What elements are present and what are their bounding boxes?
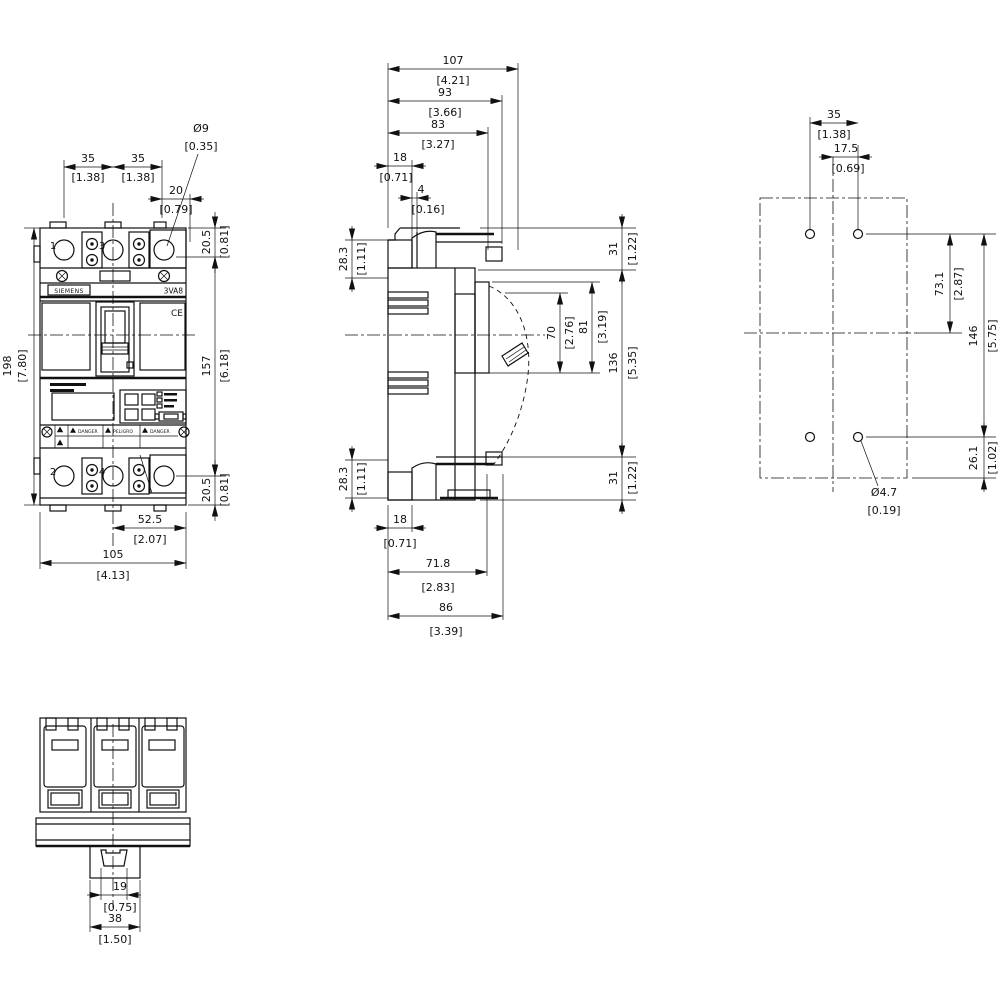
dim-side-term-top: 28.3 [1.11] <box>337 226 388 292</box>
dim-text: 35 <box>827 108 841 121</box>
terminal-hole-5 <box>154 240 174 260</box>
warning-strip: DANGER PELIGRO DANGER <box>42 425 189 448</box>
dim-text: 73.1 <box>933 272 946 297</box>
dim-side-term-bottom: 28.3 [1.11] <box>337 446 388 512</box>
terminal-number-1: 1 <box>50 241 56 252</box>
dim-text: 18 <box>393 513 407 526</box>
dim-front-total-height: 198 [7.80] <box>1 228 40 505</box>
drill-pattern-view: 35 [1.38] 17.5 [0.69] 73.1 [2.87] 146 [5… <box>744 108 999 517</box>
dim-text: 198 <box>1 356 14 377</box>
dim-side-top-4: 4 [0.16] <box>398 183 445 232</box>
dim-text: 35 <box>131 152 145 165</box>
dim-front-edge-offset: 20 [0.79] <box>148 184 204 242</box>
dim-text: [1.38] <box>121 171 154 184</box>
breaker-face: CE <box>42 302 185 376</box>
setting-dial <box>142 409 155 420</box>
ce-mark: CE <box>171 309 183 319</box>
side-toggle-handle <box>502 343 528 366</box>
dim-side-81: 81 [3.19] <box>478 282 609 373</box>
warning-label-right: DANGER <box>150 429 170 435</box>
dim-text: [1.22] <box>626 461 639 494</box>
dim-text: 81 <box>577 320 590 334</box>
warning-triangle-icon <box>105 428 111 433</box>
dim-drill-17-5: 17.5 [0.69] <box>819 142 872 175</box>
mounting-hole <box>854 433 863 442</box>
dim-drill-26-1: 26.1 [1.02] <box>912 423 999 492</box>
dim-text: [1.50] <box>98 933 131 946</box>
test-connector <box>159 412 183 421</box>
dim-text: 38 <box>108 912 122 925</box>
dim-text: [0.81] <box>218 225 231 258</box>
dim-text: [6.18] <box>218 349 231 382</box>
warning-triangle-icon <box>70 428 76 433</box>
dim-text: 28.3 <box>337 467 350 492</box>
bottom-terminals: 2 4 <box>50 455 186 494</box>
dim-text: 31 <box>607 242 620 256</box>
dim-text: 86 <box>439 601 453 614</box>
dim-text: [0.35] <box>184 140 217 153</box>
mounting-hole <box>806 433 815 442</box>
dim-text: [1.11] <box>355 242 368 275</box>
terminal-hole-6 <box>154 466 174 486</box>
dim-text: 70 <box>545 326 558 340</box>
dim-text: Ø4.7 <box>871 486 897 499</box>
dim-text: [0.71] <box>383 537 416 550</box>
dim-front-cover-height: 157 [6.18] <box>176 257 231 476</box>
handle-travel-arc <box>489 286 529 464</box>
dim-text: [1.02] <box>986 441 999 474</box>
dim-side-71-8: 71.8 [2.83] <box>388 474 487 594</box>
dim-text: [2.76] <box>563 316 576 349</box>
dim-text: 71.8 <box>426 557 451 570</box>
dim-front-pole-pitch-2: 35 [1.38] <box>113 152 162 184</box>
bottom-view: 19 [0.75] 38 [1.50] <box>36 718 190 946</box>
mounting-hole <box>854 230 863 239</box>
dim-text: [0.79] <box>159 203 192 216</box>
dim-text: 26.1 <box>967 446 980 471</box>
warning-triangle-icon <box>57 427 63 433</box>
mounting-hole <box>806 230 815 239</box>
setting-dial <box>142 394 155 405</box>
dim-side-depth-83: 83 [3.27] <box>388 118 488 250</box>
dim-text: [3.27] <box>421 138 454 151</box>
dim-text: [2.87] <box>952 267 965 300</box>
dim-text: [5.75] <box>986 319 999 352</box>
dim-side-bottom-18: 18 [0.71] <box>374 505 426 620</box>
dim-text: [2.83] <box>421 581 454 594</box>
dim-text: [0.19] <box>867 504 900 517</box>
dim-text: 31 <box>607 471 620 485</box>
dim-text: 4 <box>418 183 425 196</box>
dim-text: [1.38] <box>71 171 104 184</box>
brand-label: SIEMENS <box>54 288 83 295</box>
dim-text: [3.19] <box>596 310 609 343</box>
dim-text: [3.39] <box>429 625 462 638</box>
warning-label-mid: PELIGRO <box>113 429 133 435</box>
terminal-number-2: 2 <box>50 467 56 478</box>
dim-drill-146: 146 [5.75] <box>866 234 999 437</box>
dim-text: 136 <box>607 353 620 374</box>
side-view: 107 [4.21] 93 [3.66] 83 [3.27] 18 [0.71]… <box>337 54 639 638</box>
top-terminals: 1 3 <box>50 230 186 268</box>
pole-module <box>44 726 86 808</box>
din-rail-tab <box>90 846 140 878</box>
dim-text: 146 <box>967 326 980 347</box>
dim-drill-hole-dia: Ø4.7 [0.19] <box>861 441 901 517</box>
dim-text: 157 <box>200 356 213 377</box>
dim-drill-73-1: 73.1 [2.87] <box>866 234 996 333</box>
setting-dial <box>125 409 138 420</box>
toggle-handle <box>105 311 125 343</box>
dim-text: 19 <box>113 880 127 893</box>
dim-side-depth-93: 93 [3.66] <box>388 86 502 244</box>
dim-text: 17.5 <box>834 142 859 155</box>
handle-escutcheon <box>475 282 489 373</box>
dim-text: 52.5 <box>138 513 163 526</box>
dim-text: [2.07] <box>133 533 166 546</box>
dim-front-half-width: 52.5 [2.07] <box>113 512 186 569</box>
dimension-drawing: 1 3 SIEMENS 3VA8 CE <box>0 0 1000 1000</box>
warning-label-left: DANGER <box>78 429 98 435</box>
dim-text: 28.3 <box>337 247 350 272</box>
dim-text: [5.35] <box>626 346 639 379</box>
dim-text: 20 <box>169 184 183 197</box>
dim-front-terminal-bottom: 20.5 [0.81] <box>188 460 231 521</box>
dim-text: 20.5 <box>200 478 213 503</box>
dim-front-terminal-top: 20.5 [0.81] <box>176 212 231 273</box>
dim-text: [4.13] <box>96 569 129 582</box>
dim-text: [1.38] <box>817 128 850 141</box>
dim-text: [0.16] <box>411 203 444 216</box>
dim-side-136: 136 [5.35] <box>607 270 639 457</box>
terminal-number-3: 3 <box>99 241 105 252</box>
dim-side-31-bottom: 31 [1.22] <box>480 443 639 514</box>
dim-bottom-19: 19 [0.75] <box>87 868 141 914</box>
dim-side-depth-total: 107 [4.21] <box>388 54 518 250</box>
dim-text: 35 <box>81 152 95 165</box>
warning-triangle-icon <box>142 428 148 433</box>
rating-plate <box>50 383 186 423</box>
breaker-outline-phantom <box>760 198 907 478</box>
pole-module <box>94 726 136 808</box>
dim-text: [0.69] <box>831 162 864 175</box>
terminal-number-4: 4 <box>99 467 105 478</box>
dim-text: [0.81] <box>218 473 231 506</box>
dim-text: 83 <box>431 118 445 131</box>
dim-text: [7.80] <box>16 349 29 382</box>
drawing-page: 1 3 SIEMENS 3VA8 CE <box>0 0 1000 1000</box>
dim-text: 105 <box>103 548 124 561</box>
dim-text: 18 <box>393 151 407 164</box>
dim-text: [1.11] <box>355 462 368 495</box>
dim-text: [0.71] <box>379 171 412 184</box>
dim-text: 93 <box>438 86 452 99</box>
dim-text: 107 <box>443 54 464 67</box>
dim-text: [1.22] <box>626 232 639 265</box>
terminal-hole-1 <box>54 240 74 260</box>
setting-dial <box>125 394 138 405</box>
dim-text: Ø9 <box>193 122 209 135</box>
pole-module <box>142 726 184 808</box>
front-view: 1 3 SIEMENS 3VA8 CE <box>1 122 231 582</box>
model-label: 3VA8 <box>164 287 184 296</box>
dim-text: 20.5 <box>200 230 213 255</box>
warning-triangle-icon <box>57 440 63 446</box>
terminal-hole-2 <box>54 466 74 486</box>
